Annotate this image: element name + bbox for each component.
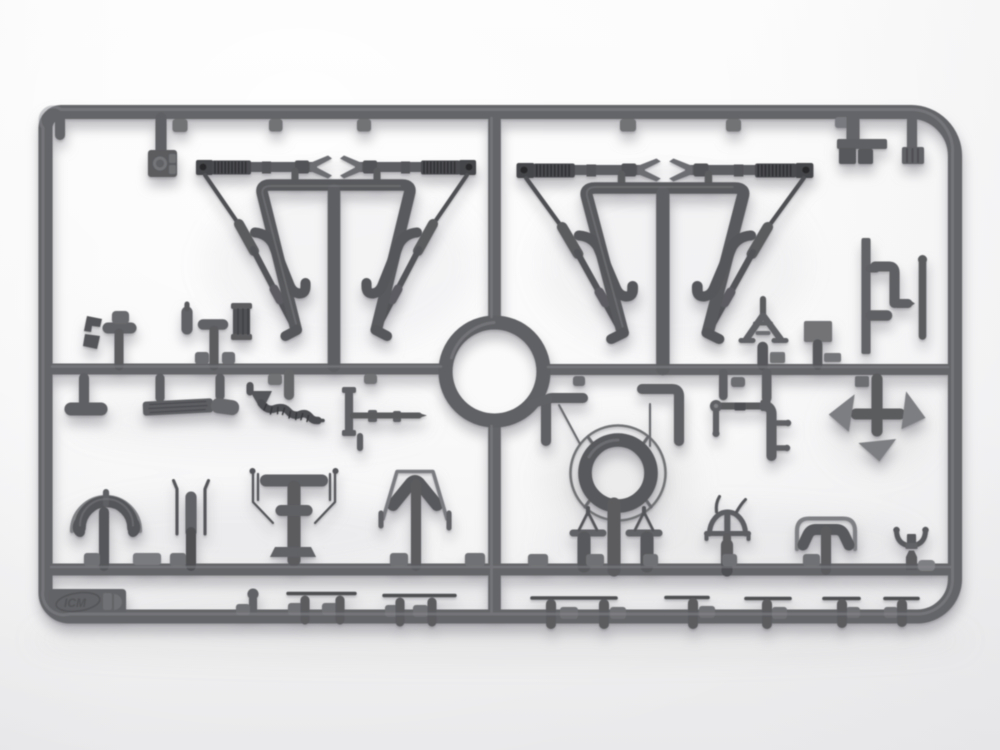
svg-text:ICM: ICM xyxy=(64,596,87,610)
